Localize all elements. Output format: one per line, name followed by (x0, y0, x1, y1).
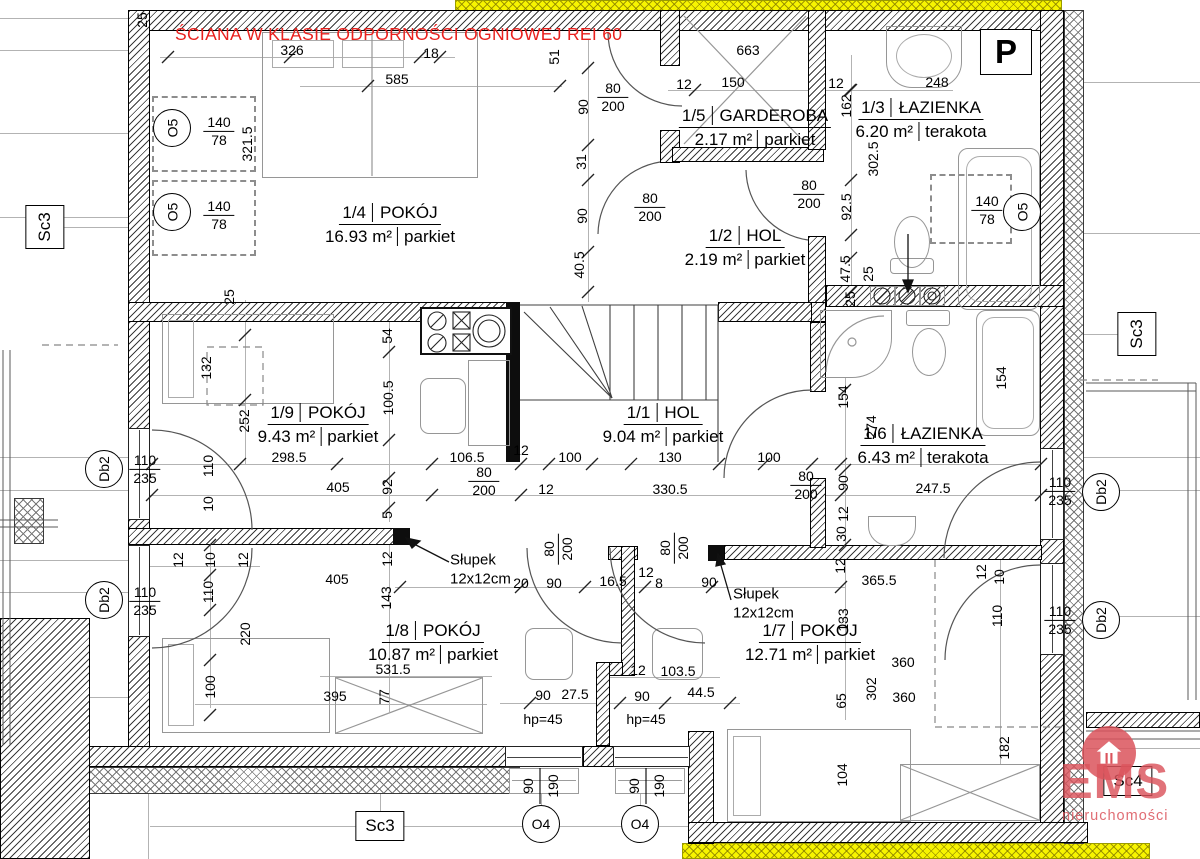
room-label-1-1: 1/1HOL 9.04 m²parkiet (603, 403, 724, 447)
room-label-1-9: 1/9POKÓJ 9.43 m²parkiet (258, 403, 379, 447)
fire-rating-note: ŚCIANA W KLASIE ODPORNOŚCI OGNIOWEJ REI … (175, 24, 622, 45)
ems-logo: EMS nieruchomości (1058, 726, 1200, 836)
ems-subtitle-text: nieruchomości (1062, 808, 1169, 824)
room-label-1-7: 1/7POKÓJ 12.71 m²parkiet (745, 621, 875, 665)
room-label-1-6: 1/6ŁAZIENKA 6.43 m²terakota (857, 424, 988, 468)
room-labels: 1/4POKÓJ 16.93 m²parkiet 1/5GARDEROBA 2.… (0, 0, 1200, 859)
room-label-1-4: 1/4POKÓJ 16.93 m²parkiet (325, 203, 455, 247)
ems-brand-text: EMS (1060, 758, 1169, 807)
floor-plan-drawing: 2532618585516631215012248162302.59031904… (0, 0, 1200, 859)
room-label-1-2: 1/2HOL 2.19 m²parkiet (685, 226, 806, 270)
room-label-1-5: 1/5GARDEROBA 2.17 m²parkiet (679, 106, 831, 150)
room-label-1-3: 1/3ŁAZIENKA 6.20 m²terakota (855, 98, 986, 142)
room-label-1-8: 1/8POKÓJ 10.87 m²parkiet (368, 621, 498, 665)
